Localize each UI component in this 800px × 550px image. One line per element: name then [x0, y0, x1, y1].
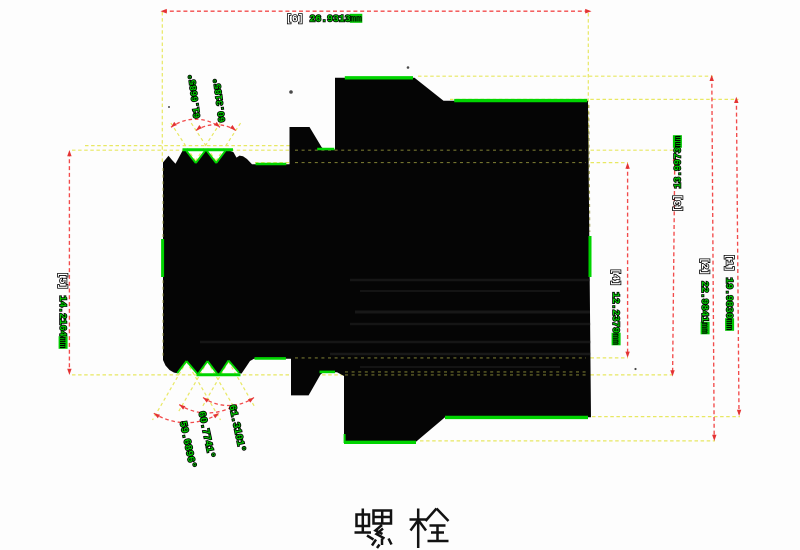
svg-text:[3] 13.9973: [3] 13.9973 [673, 147, 684, 212]
svg-text:mm: mm [673, 135, 684, 147]
svg-text:mm: mm [57, 337, 68, 349]
svg-text:mm: mm [610, 333, 621, 345]
svg-text:mm: mm [350, 14, 362, 25]
svg-text:mm: mm [699, 322, 710, 334]
svg-text:[5] 14.2164: [5] 14.2164 [57, 272, 68, 337]
svg-text:mm: mm [724, 319, 735, 331]
svg-text:[4] 12.2379: [4] 12.2379 [610, 269, 621, 334]
svg-text:[2] 22.9841: [2] 22.9841 [699, 258, 710, 323]
svg-text:[6] 26.9313: [6] 26.9313 [286, 14, 351, 25]
svg-text:[1] 19.9830: [1] 19.9830 [724, 254, 735, 319]
